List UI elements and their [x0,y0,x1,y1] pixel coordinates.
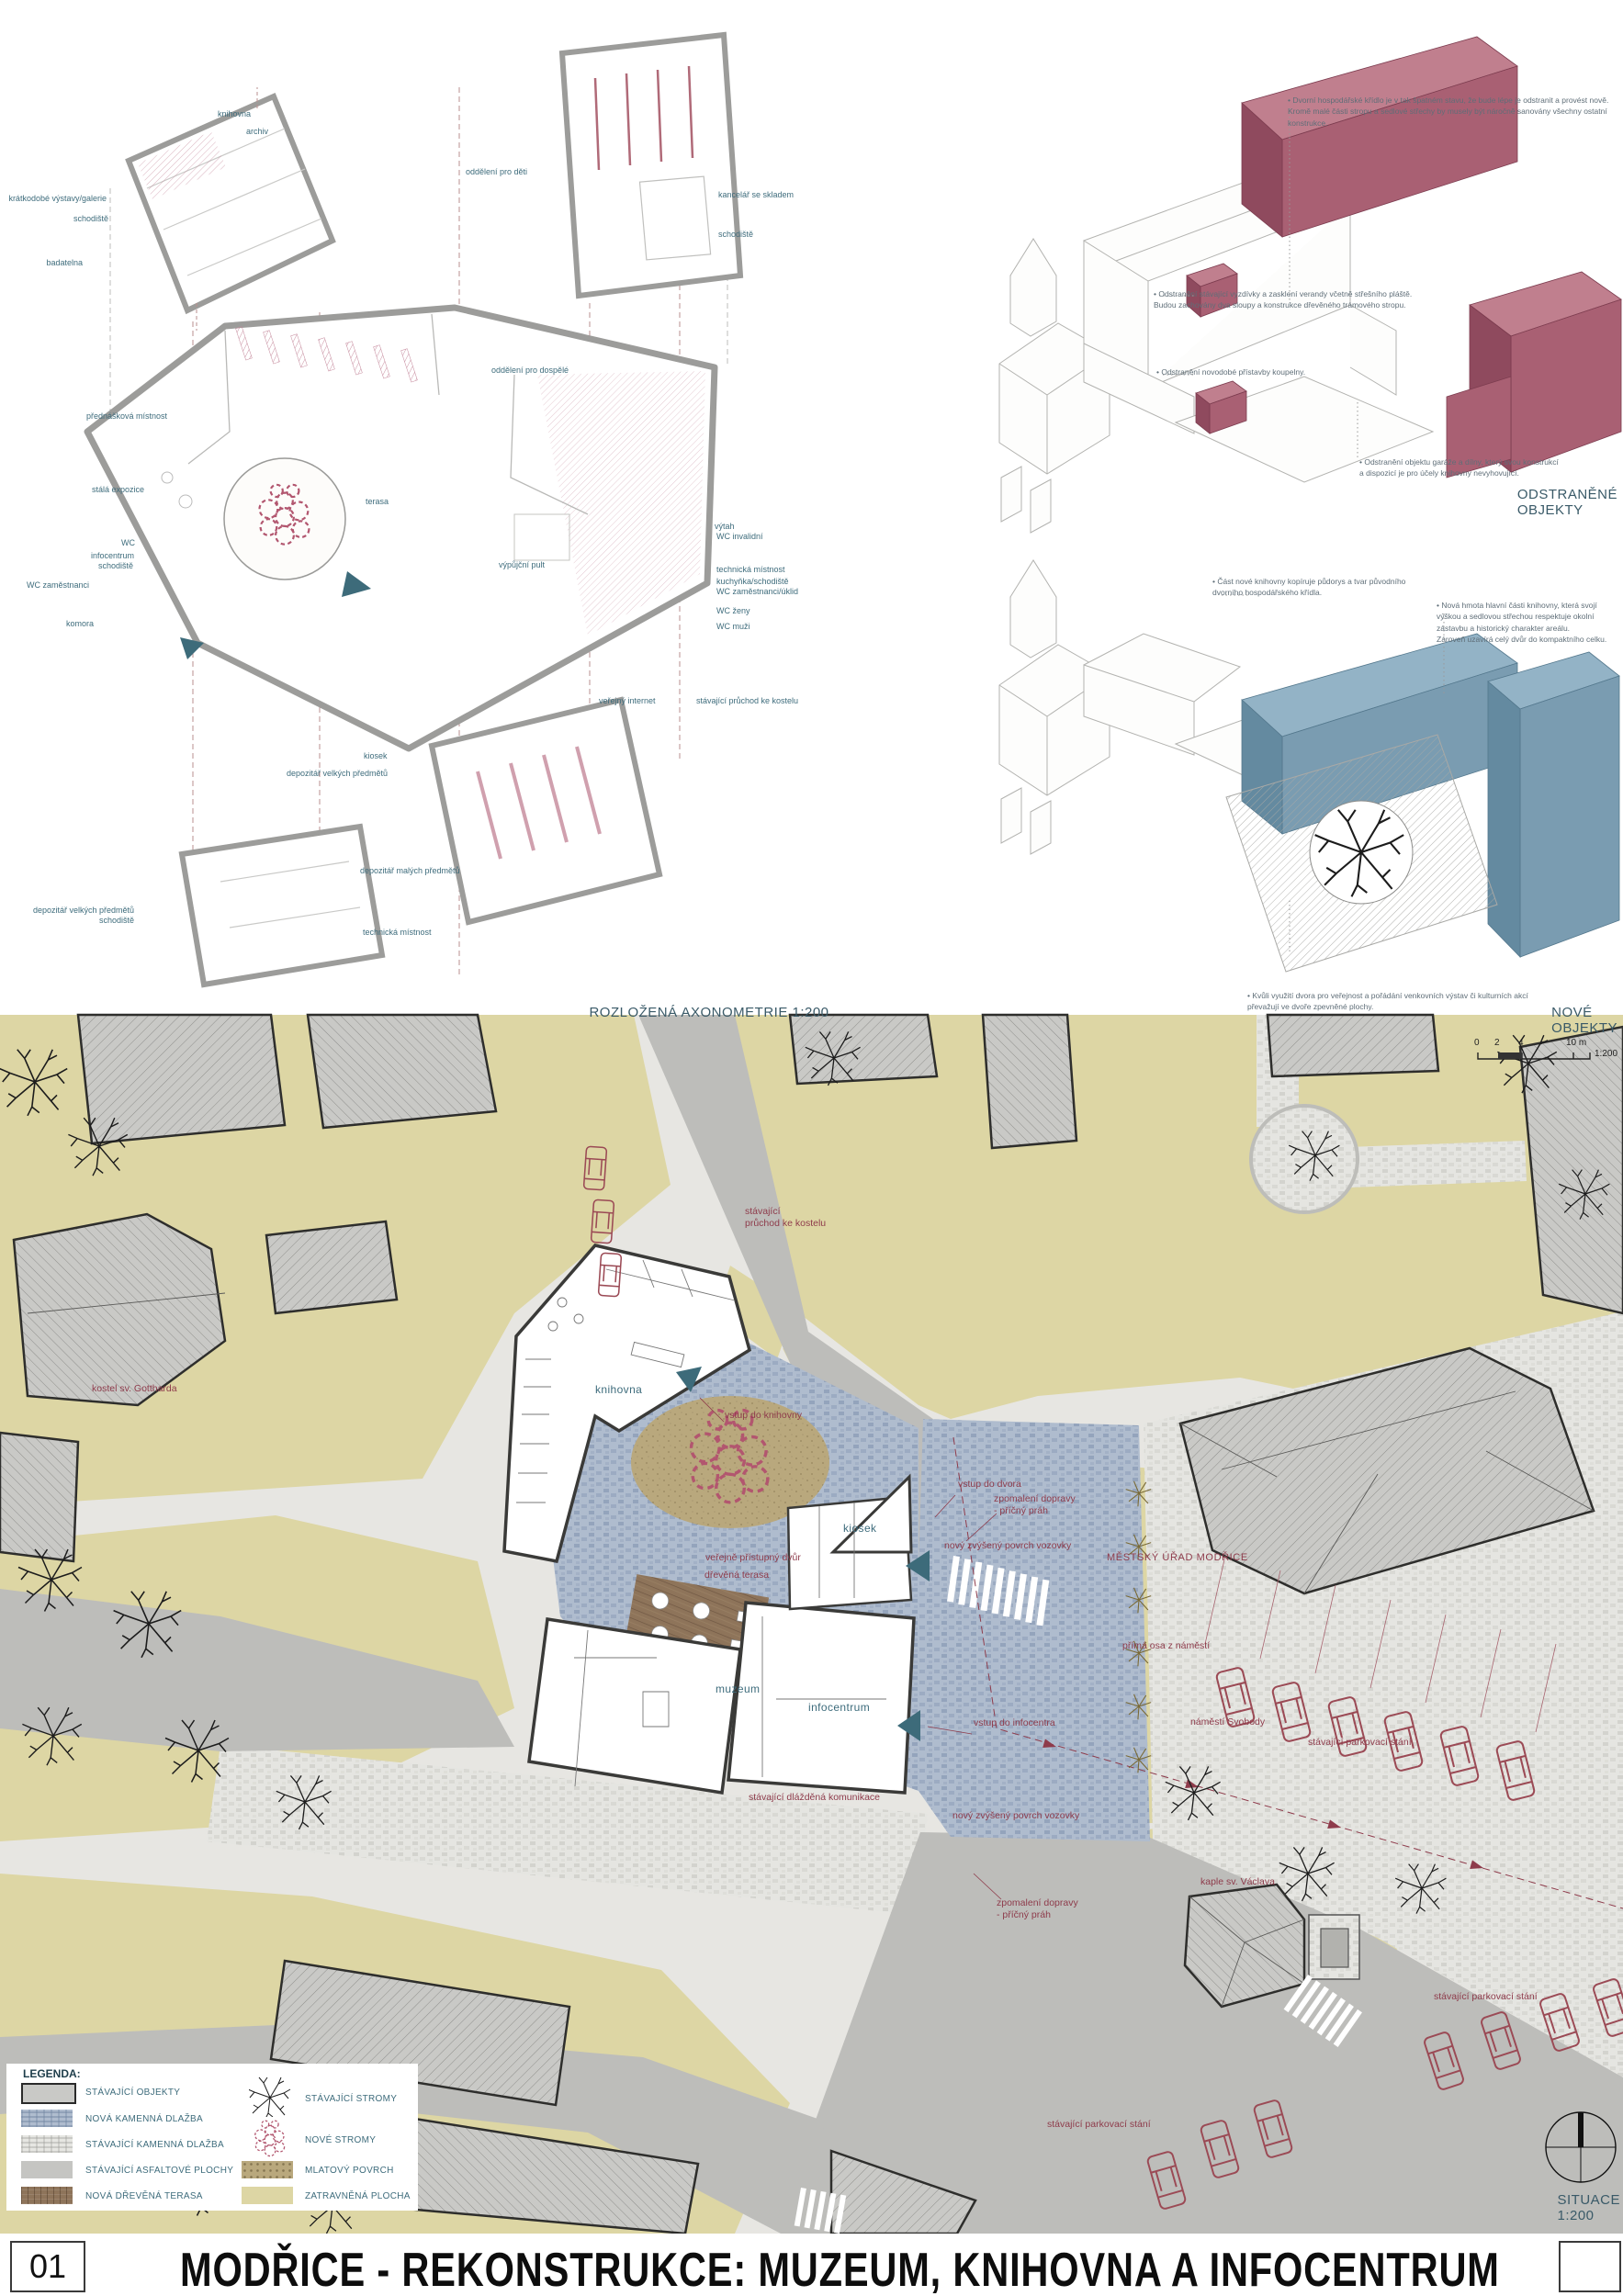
new-note-1: • Část nové knihovny kopíruje půdorys a … [1212,576,1488,599]
axo-label-kuchynka: kuchyňka/schodiště [716,577,789,587]
legend-swatch-objekty [21,2083,76,2104]
axo-label-dep-malych: depozitář malých předmětů [360,866,460,876]
axo-label-schodiste2: schodiště [718,230,753,240]
site-label-vstup-dvur: vstup do dvora [958,1479,1021,1491]
site-label-terasa: dřevěná terasa [704,1570,769,1581]
legend-item: NOVÁ KAMENNÁ DLAŽBA [85,2114,203,2124]
site-label-dvur: veřejně přístupný dvůr [705,1552,801,1564]
site-label-kostel: kostel sv. Gottharda [92,1383,177,1395]
axo-label-tech2: technická místnost [363,928,432,938]
site-plan [0,1015,1623,2234]
title-bar: 01 MODŘICE - REKONSTRUKCE: MUZEUM, KNIHO… [0,2234,1623,2296]
legend-item: ZATRAVNĚNÁ PLOCHA [305,2191,411,2201]
scale-ratio: 1:200 [1595,1049,1617,1059]
legend-panel: LEGENDA: STÁVAJÍCÍ OBJEKTY NOVÁ KAMENNÁ … [6,2064,418,2211]
legend-item: NOVÉ STROMY [305,2135,376,2145]
axo-label-pruchod: stávající průchod ke kostelu [696,696,798,706]
legend-swatch-grass [242,2187,293,2204]
axo-label-galerie: krátkodobé výstavy/galerie [8,194,107,204]
legend-swatch-asfalt [21,2161,73,2178]
site-label-parking-2: stávající parkovací stání [1434,1991,1538,2003]
exploded-axonometry [87,35,740,985]
site-label-kiosek: kiosek [843,1522,876,1535]
siteplan-caption: SITUACE 1:200 [1557,2192,1620,2223]
scale-tick-10: 10 m [1566,1038,1586,1048]
axonometry-caption: ROZLOŽENÁ AXONOMETRIE 1:200 [589,1005,828,1020]
north-compass [1546,2112,1616,2182]
board-drawing [0,0,1623,2296]
legend-swatch-nova-dlazba [21,2110,73,2127]
axo-label-terasa: terasa [366,497,389,507]
axo-label-wc-inv: WC invalidní [716,532,763,542]
legend-item: STÁVAJÍCÍ STROMY [305,2094,397,2104]
axo-label-schodiste4: schodiště [99,916,134,926]
monument [1309,1915,1359,1979]
new-note-2: • Nová hmota hlavní části knihovny, kter… [1437,600,1623,645]
axo-label-pult: výpůjční pult [499,560,545,570]
axo-label-vytah: výtah [715,522,735,532]
axo-label-wc-zeny: WC ženy [716,606,750,616]
axo-label-schodiste3: schodiště [98,561,133,571]
axo-plate-galerie [129,87,332,331]
axo-label-deti: oddělení pro děti [466,167,527,177]
axo-label-wc: WC [121,538,135,548]
removed-note-1: • Dvorní hospodářské křídlo je v tak špa… [1288,95,1618,129]
page-title: MODŘICE - REKONSTRUKCE: MUZEUM, KNIHOVNA… [180,2243,1500,2296]
new-objects-caption: NOVÉ OBJEKTY [1551,1005,1617,1036]
legend-swatch-terasa [21,2187,73,2204]
removed-note-2: • Odstranění stávající vyzdívky a zaskle… [1154,288,1457,311]
site-label-komunikace: stávající dlážděná komunikace [749,1792,880,1804]
site-label-vstup-knihovna: vstup do knihovny [725,1410,802,1422]
legend-title: LEGENDA: [23,2067,81,2080]
building-muzeum [529,1619,740,1793]
axo-label-kancelar: kancelář se skladem [718,190,794,200]
axo-label-expozice: stálá expozice [92,485,144,495]
site-label-infocentrum: infocentrum [808,1701,870,1714]
axo-label-prednaskova: přednášková místnost [86,411,167,422]
circular-plaza [1251,1106,1358,1212]
site-label-parking-3: stávající parkovací stání [1047,2119,1151,2131]
axo-label-dep-velkych2: depozitář velkých předmětů [33,906,134,916]
axo-label-wc-uklid: WC zaměstnanci/úklid [716,587,798,597]
presentation-board: knihovna archiv krátkodobé výstavy/galer… [0,0,1623,2296]
site-label-kaple: kaple sv. Václava [1200,1876,1275,1888]
axo-label-dep-velkych1: depozitář velkých předmětů [287,769,388,779]
site-label-parking-1: stávající parkovací stání [1308,1737,1412,1749]
site-label-osa: přímá osa z náměstí [1122,1640,1210,1652]
scale-tick-0: 0 [1474,1038,1480,1048]
removed-note-3: • Odstranění novodobé přístavby koupelny… [1156,366,1432,377]
site-label-vstup-info: vstup do infocentra [974,1717,1055,1729]
legend-item: MLATOVÝ POVRCH [305,2166,394,2176]
axo-label-wc-muzi: WC muži [716,622,750,632]
site-label-pruchod: stávající průchod ke kostelu [745,1206,826,1229]
scale-tick-4: 4 [1518,1038,1524,1048]
axo-label-komora: komora [66,619,94,629]
site-label-zpomaleni-2: zpomalení dopravy - příčný práh [997,1897,1078,1920]
legend-swatch-stav-dlazba [21,2135,73,2153]
site-label-knihovna: knihovna [595,1383,642,1396]
removed-caption: ODSTRANĚNÉ OBJEKTY [1517,487,1617,518]
revision-box [1559,2241,1621,2292]
axo-label-tech1: technická místnost [716,565,785,575]
axo-label-infocentrum: infocentrum [91,551,134,561]
site-label-muzeum: muzeum [716,1683,760,1695]
legend-item: NOVÁ DŘEVĚNÁ TERASA [85,2191,203,2201]
site-label-povrch-2: nový zvýšený povrch vozovky [952,1810,1079,1822]
legend-tree-existing-icon [249,2075,291,2117]
axo-label-schodiste1: schodiště [73,214,108,224]
axo-plate-deti [562,35,740,296]
removed-note-4: • Odstranění objektu garáže a dílny, kte… [1359,456,1617,479]
legend-item: STÁVAJÍCÍ ASFALTOVÉ PLOCHY [85,2166,233,2176]
site-label-urad: MĚSTSKÝ ÚŘAD MODŘICE [1107,1552,1248,1564]
legend-item: STÁVAJÍCÍ OBJEKTY [85,2088,180,2098]
axo-label-badatelna: badatelna [46,258,83,268]
axo-label-knihovna: knihovna [218,109,251,119]
axo-label-wc-zam: WC zaměstnanci [27,580,89,591]
sheet-number-box: 01 [10,2241,85,2292]
scale-tick-2: 2 [1494,1038,1500,1048]
sheet-number: 01 [29,2247,66,2286]
site-label-zpomaleni-1: zpomalení dopravy - příčný práh [994,1493,1076,1516]
axo-label-archiv: archiv [246,127,268,137]
legend-tree-new-icon [249,2117,291,2159]
building-infoc [728,1603,914,1793]
axo-label-internet: veřejný internet [599,696,656,706]
axo-label-dospele: oddělení pro dospělé [491,366,569,376]
site-label-povrch-1: nový zvýšený povrch vozovky [944,1540,1071,1552]
axo-plate-main [87,308,715,748]
site-label-namesti: náměstí Svobody [1190,1716,1265,1728]
legend-item: STÁVAJÍCÍ KAMENNÁ DLAŽBA [85,2140,224,2150]
axo-label-kiosek: kiosek [364,751,388,761]
legend-swatch-mlat [242,2161,293,2178]
